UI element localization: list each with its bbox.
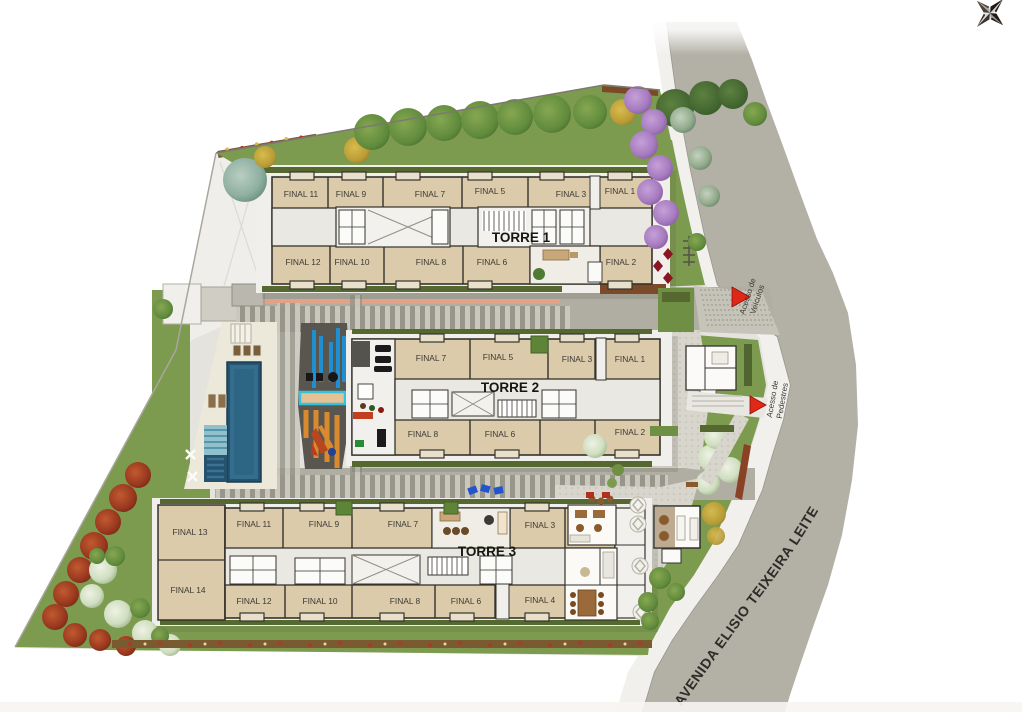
svg-text:FINAL 9: FINAL 9 xyxy=(336,189,367,199)
svg-text:FINAL 11: FINAL 11 xyxy=(237,519,272,529)
svg-text:FINAL 12: FINAL 12 xyxy=(236,596,271,606)
svg-text:FINAL 1: FINAL 1 xyxy=(615,354,646,364)
svg-text:FINAL 7: FINAL 7 xyxy=(416,353,447,363)
svg-text:TORRE 3: TORRE 3 xyxy=(458,544,517,559)
svg-text:FINAL 10: FINAL 10 xyxy=(302,596,337,606)
svg-text:FINAL 1: FINAL 1 xyxy=(605,186,636,196)
svg-text:FINAL 12: FINAL 12 xyxy=(285,257,320,267)
svg-text:FINAL 5: FINAL 5 xyxy=(483,352,514,362)
svg-text:FINAL 7: FINAL 7 xyxy=(388,519,419,529)
svg-text:TORRE 2: TORRE 2 xyxy=(481,380,539,395)
svg-text:TORRE 1: TORRE 1 xyxy=(492,230,551,245)
svg-text:FINAL 2: FINAL 2 xyxy=(606,257,637,267)
svg-text:FINAL 7: FINAL 7 xyxy=(415,189,446,199)
svg-text:FINAL 6: FINAL 6 xyxy=(451,596,482,606)
svg-text:FINAL 5: FINAL 5 xyxy=(475,186,506,196)
svg-text:FINAL 6: FINAL 6 xyxy=(477,257,508,267)
svg-text:FINAL 8: FINAL 8 xyxy=(416,257,447,267)
svg-text:FINAL 2: FINAL 2 xyxy=(615,427,646,437)
svg-text:FINAL 9: FINAL 9 xyxy=(309,519,340,529)
svg-text:FINAL 4: FINAL 4 xyxy=(525,595,556,605)
svg-text:FINAL 8: FINAL 8 xyxy=(408,429,439,439)
svg-text:FINAL 3: FINAL 3 xyxy=(562,354,593,364)
svg-text:FINAL 3: FINAL 3 xyxy=(556,189,587,199)
svg-text:FINAL 10: FINAL 10 xyxy=(334,257,369,267)
svg-text:FINAL 13: FINAL 13 xyxy=(172,527,207,537)
svg-text:FINAL 6: FINAL 6 xyxy=(485,429,516,439)
svg-text:FINAL 3: FINAL 3 xyxy=(525,520,556,530)
svg-text:FINAL 14: FINAL 14 xyxy=(170,585,205,595)
svg-text:FINAL 8: FINAL 8 xyxy=(390,596,421,606)
svg-text:FINAL 11: FINAL 11 xyxy=(284,189,319,199)
